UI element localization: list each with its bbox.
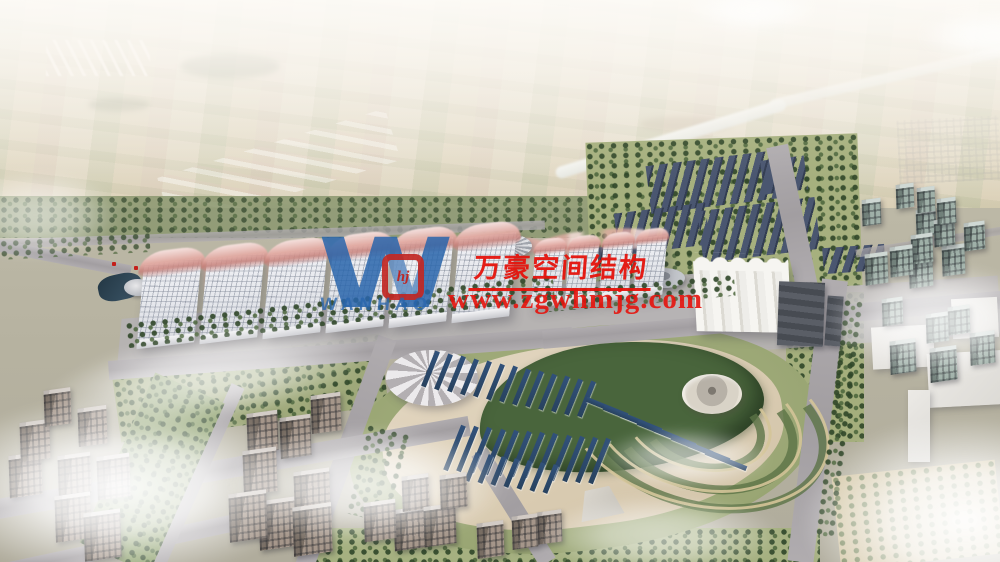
logo-wordmark: WANHAO xyxy=(319,294,433,315)
logo-monogram: hj xyxy=(397,269,410,286)
watermark: W hj WANHAO 万豪空间结构 www.zgwhmjg.com xyxy=(0,0,1000,562)
aerial-render-image: W hj WANHAO 万豪空间结构 www.zgwhmjg.com xyxy=(0,0,1000,562)
watermark-website: www.zgwhmjg.com xyxy=(448,283,703,316)
